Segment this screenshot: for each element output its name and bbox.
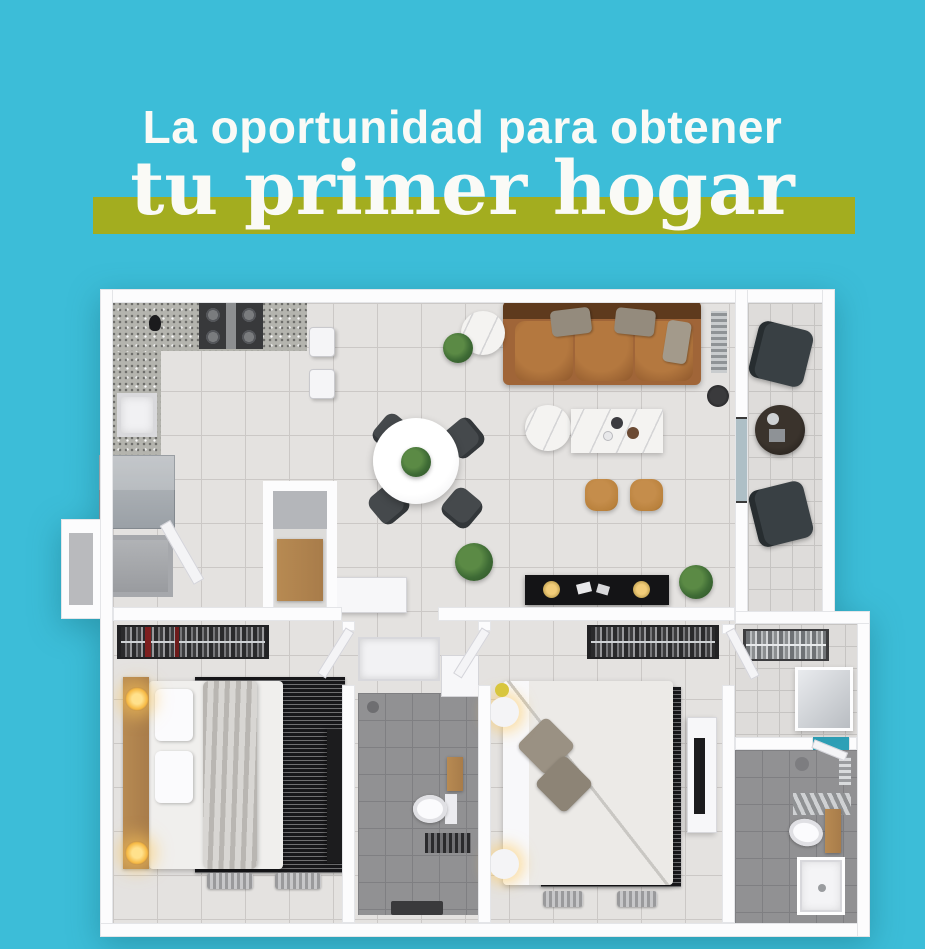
wall-right-lower [857, 611, 870, 937]
balcony-glass-door [736, 417, 747, 503]
nightstand [489, 697, 519, 727]
tv-console [525, 575, 669, 605]
pantry-door [277, 539, 323, 601]
kitchen-sink [117, 393, 157, 437]
magazine-rack-icon [711, 311, 727, 373]
plant-pot [455, 543, 493, 581]
shower-enclosure [797, 857, 845, 915]
nightstand [489, 849, 519, 879]
hall-console-cabinet [333, 577, 407, 613]
dining-centerpiece-plant [401, 447, 431, 477]
decor-bowl-icon [627, 427, 639, 439]
bedroom2-tv-dresser [327, 729, 343, 863]
hanging-clothes [121, 627, 265, 657]
shower-drain-icon [367, 701, 379, 713]
shower-tray [358, 637, 440, 681]
decor-paper-icon [596, 584, 610, 596]
bed-pillow [155, 689, 193, 741]
shower-head-icon [795, 757, 809, 771]
master-bed [503, 681, 673, 885]
red-garment [145, 627, 151, 657]
toilet [413, 795, 447, 823]
decor-paper-icon [576, 581, 592, 594]
wall-master-right-b [722, 685, 735, 923]
marble-coffee-table [571, 409, 663, 453]
shower-fixtures-icon [839, 757, 851, 785]
bathroom-vanity [825, 809, 841, 853]
decor-tray-icon [767, 413, 779, 425]
wall-bedroom2-right-b [342, 685, 355, 923]
stove [199, 303, 263, 349]
headline-line2: tu primer hogar [0, 146, 925, 232]
decor-cup-icon [603, 431, 613, 441]
sofa-pillow [614, 307, 656, 337]
plant-pot [443, 333, 473, 363]
kitchen-stool [309, 327, 335, 357]
hanging-clothes [591, 627, 715, 657]
decor-book-icon [769, 429, 785, 442]
wall-bath1-right-b [478, 685, 491, 923]
bed-blanket [203, 681, 257, 869]
slipper-mat [617, 891, 657, 907]
wall-closet-bath2-b [849, 737, 857, 750]
slipper-mat [543, 891, 583, 907]
plant-pot [679, 565, 713, 599]
kitchen-faucet-icon [149, 315, 161, 331]
closet-rod-walkin [743, 629, 829, 661]
master-dresser [687, 717, 717, 833]
marble-coffee-table-round [525, 405, 571, 451]
floor-plan [95, 289, 870, 936]
shower-handle-icon [818, 884, 826, 892]
floor-lamp-icon [707, 385, 729, 407]
closet-mirror [795, 667, 853, 731]
wall-top [100, 289, 835, 303]
hanging-clothes [746, 631, 826, 659]
decor-bowl-icon [611, 417, 623, 429]
bed-pillow [155, 751, 193, 803]
bathroom-vanity [447, 757, 463, 791]
pantry-closet [263, 481, 337, 621]
entry-door [107, 535, 173, 597]
closet-rod-master [587, 625, 719, 659]
kitchen-stool [309, 369, 335, 399]
bedside-lamp-glow [125, 841, 149, 865]
balcony-table [755, 405, 805, 455]
slipper-mat [275, 873, 321, 889]
bath-mat [391, 901, 443, 915]
candle-icon [543, 581, 560, 598]
promo-poster: La oportunidad para obtener tu primer ho… [0, 0, 925, 949]
bedroom2-bed [149, 681, 283, 869]
wall-divider-left [113, 607, 342, 621]
sofa [503, 301, 701, 385]
tv-flat-icon [694, 738, 705, 814]
headline-line1: La oportunidad para obtener [0, 100, 925, 154]
sofa-back [503, 301, 701, 319]
wall-divider-right [438, 607, 735, 621]
closet-rod-bedroom2 [117, 625, 269, 659]
towel-stack [425, 833, 471, 853]
wall-left [100, 289, 113, 937]
slipper-mat [207, 873, 253, 889]
leather-pouf [630, 479, 663, 511]
red-garment [175, 627, 179, 657]
candle-icon [633, 581, 650, 598]
towel-rack [793, 793, 851, 815]
sofa-pillow [550, 307, 593, 338]
flower-decor-icon [495, 683, 509, 697]
wall-balcony-right [822, 289, 835, 624]
entry-nook-shelf [69, 533, 93, 605]
wall-closet-bath2-a [735, 737, 813, 750]
wall-bottom [100, 923, 870, 937]
leather-pouf [585, 479, 618, 511]
pantry-shelf [273, 491, 327, 529]
wall-balcony-closet-top [735, 611, 870, 624]
bedside-lamp-glow [125, 687, 149, 711]
